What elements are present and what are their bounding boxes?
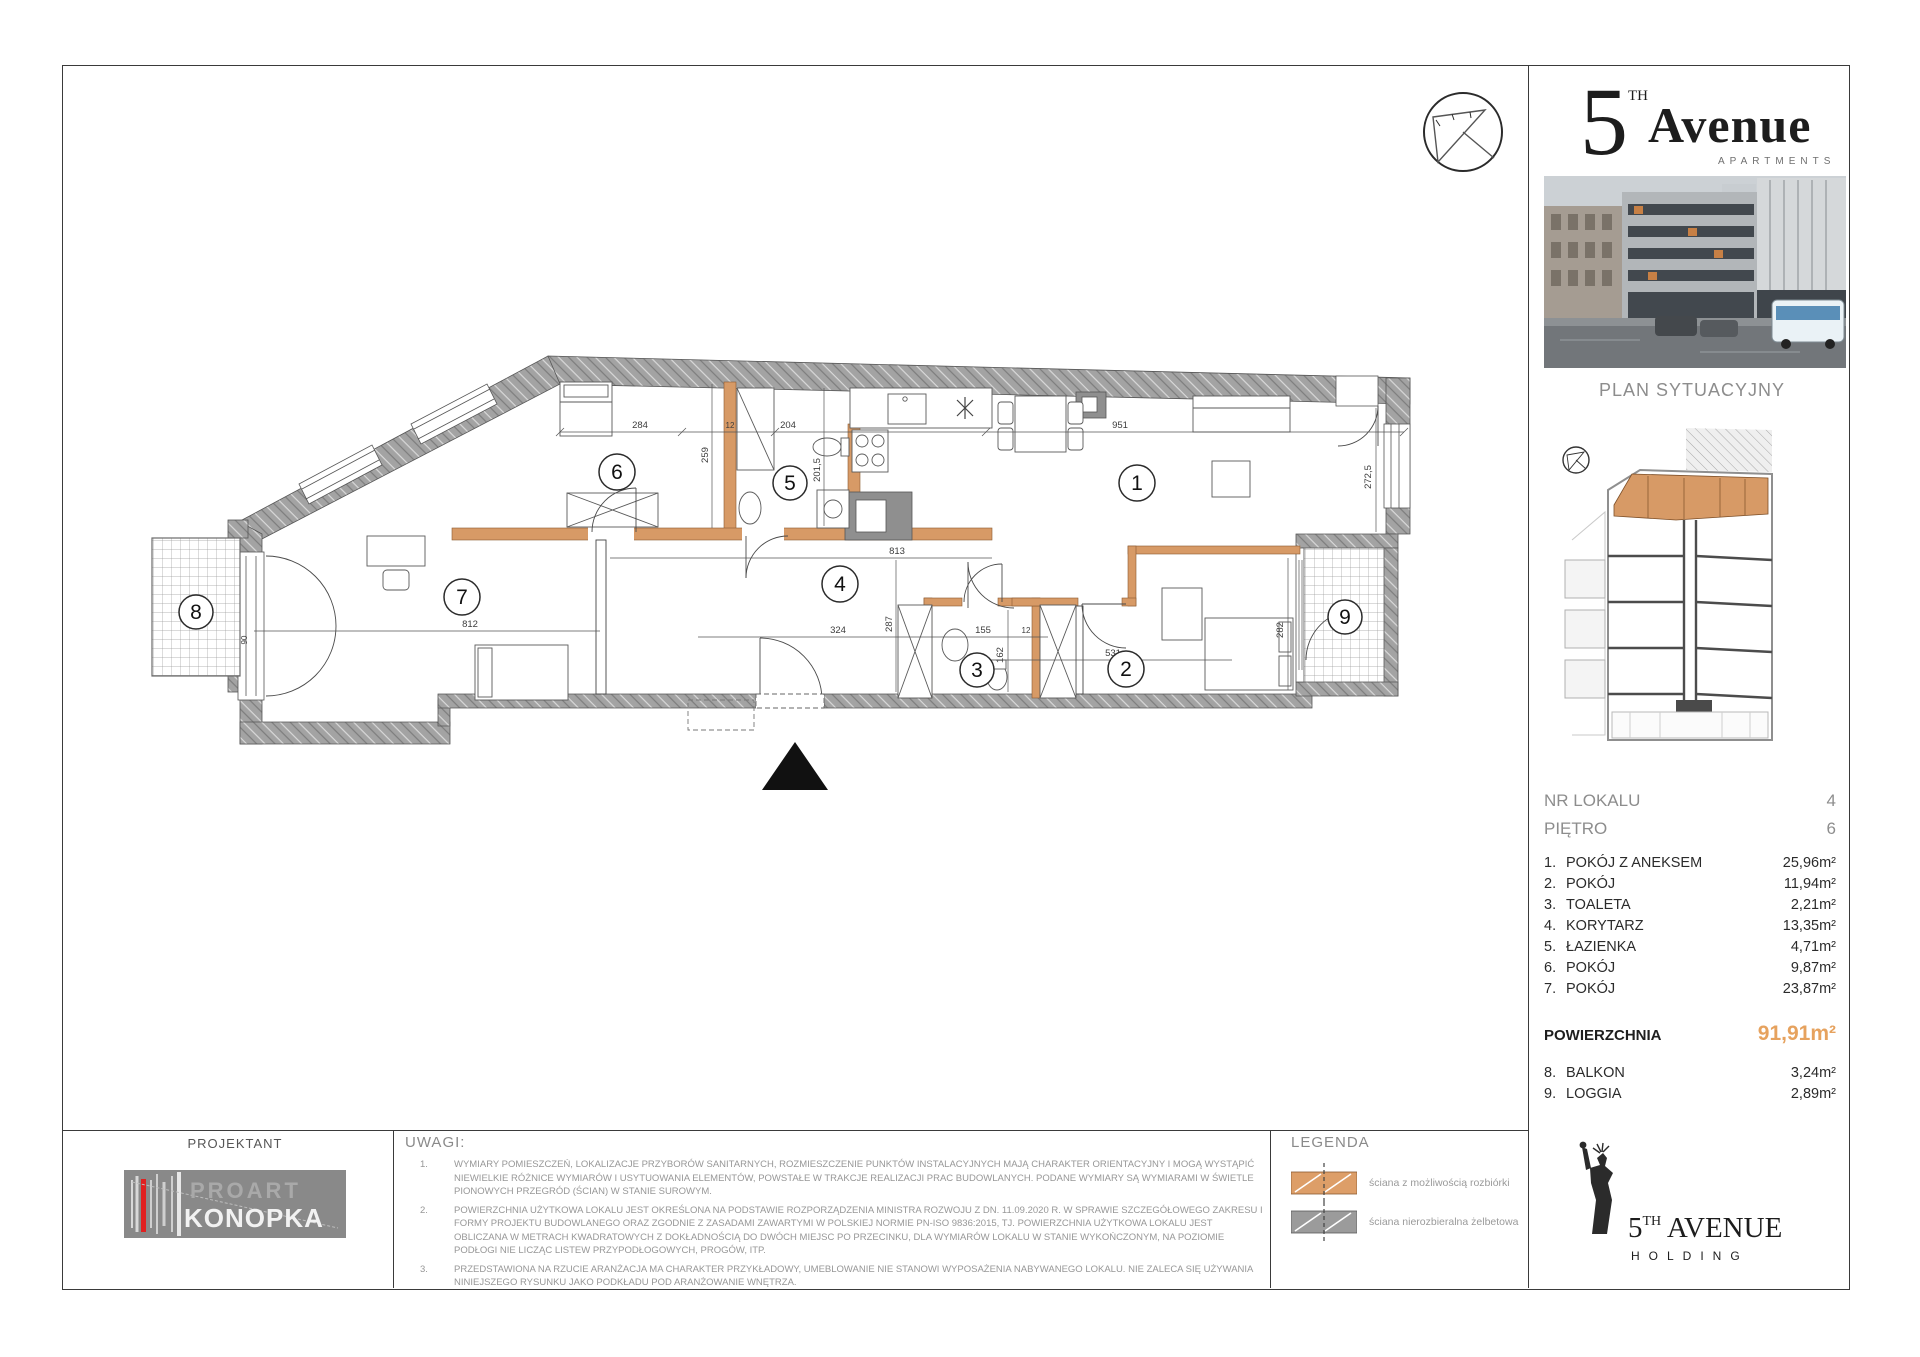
site-plan-title: PLAN SYTUACYJNY	[1542, 380, 1842, 401]
unit-number-value: 4	[1827, 791, 1836, 811]
legend-item-demountable: ściana z możliwością rozbiórki	[1291, 1163, 1510, 1203]
svg-text:3: 3	[971, 659, 983, 682]
room-number-3: 3	[960, 653, 994, 687]
footer-divider	[62, 1130, 1528, 1131]
bus	[1772, 300, 1844, 349]
brand-logo: 5THAvenue APARTMENTS	[1580, 82, 1842, 178]
room-area: 25,96m²	[1783, 855, 1836, 871]
room-name: POKÓJ	[1566, 876, 1784, 892]
room-name: BALKON	[1566, 1065, 1791, 1081]
logo-line2: KONOPKA	[184, 1203, 324, 1233]
svg-text:282: 282	[1275, 622, 1286, 638]
statue-of-liberty-icon	[1570, 1138, 1630, 1238]
room-no: 5.	[1544, 939, 1566, 955]
floor-plan-drawing: 284 12 204 951 259 201,5 813 287 324 12 …	[62, 65, 1528, 1130]
footer-divider-2	[1270, 1130, 1271, 1288]
holding-name: AVENUE	[1661, 1212, 1782, 1244]
room-number-7: 7	[444, 579, 480, 615]
room-number-6: 6	[599, 454, 635, 490]
note-no: 2.	[420, 1204, 454, 1258]
svg-text:12: 12	[1022, 626, 1031, 635]
room-number-4: 4	[822, 566, 858, 602]
svg-text:4: 4	[834, 573, 846, 596]
svg-text:813: 813	[889, 546, 905, 557]
svg-text:284: 284	[632, 420, 648, 431]
svg-text:5: 5	[784, 472, 796, 495]
svg-text:12: 12	[726, 421, 735, 430]
room-no: 3.	[1544, 897, 1566, 913]
room-no: 8.	[1544, 1065, 1566, 1081]
svg-text:155: 155	[975, 625, 991, 636]
room-number-8: 8	[179, 595, 213, 629]
room-row-1: 1. POKÓJ Z ANEKSEM 25,96m²	[1542, 855, 1842, 871]
legend-swatch-gray	[1291, 1202, 1357, 1242]
svg-text:90: 90	[240, 635, 249, 644]
legend-label: ściana z możliwością rozbiórki	[1369, 1177, 1510, 1189]
room-no: 4.	[1544, 918, 1566, 934]
svg-text:7: 7	[456, 586, 468, 609]
brand-word: Avenue	[1648, 97, 1811, 153]
building-photo	[1544, 176, 1846, 368]
north-orientation-icon	[1424, 93, 1502, 171]
room-name: POKÓJ Z ANEKSEM	[1566, 855, 1783, 871]
room-no: 1.	[1544, 855, 1566, 871]
room-area: 9,87m²	[1791, 960, 1836, 976]
room-area: 23,87m²	[1783, 981, 1836, 997]
svg-text:324: 324	[830, 625, 846, 636]
legend-item-concrete: ściana nierozbieralna żelbetowa	[1291, 1202, 1518, 1242]
svg-text:1: 1	[1131, 472, 1143, 495]
svg-text:204: 204	[780, 420, 796, 431]
notes-list: 1. WYMIARY POMIESZCZEŃ, LOKALIZACJE PRZY…	[420, 1158, 1265, 1295]
note-no: 3.	[420, 1263, 454, 1290]
legend-swatch-orange	[1291, 1163, 1357, 1203]
room-area: 2,21m²	[1791, 897, 1836, 913]
note-text: POWIERZCHNIA UŻYTKOWA LOKALU JEST OKREŚL…	[454, 1204, 1265, 1258]
svg-text:201,5: 201,5	[812, 458, 823, 482]
svg-text:162: 162	[995, 647, 1006, 663]
note-text: WYMIARY POMIESZCZEŃ, LOKALIZACJE PRZYBOR…	[454, 1158, 1265, 1199]
room-number-9: 9	[1328, 600, 1362, 634]
holding-logo: 5TH AVENUE HOLDING	[1628, 1212, 1828, 1263]
entrance-marker	[762, 742, 828, 790]
total-area-row: POWIERZCHNIA 91,91m²	[1542, 1022, 1842, 1046]
room-name: POKÓJ	[1566, 981, 1783, 997]
brand-subtitle: APARTMENTS	[1718, 156, 1835, 167]
entrance-threshold	[756, 694, 824, 708]
svg-text:6: 6	[611, 461, 623, 484]
room-no: 6.	[1544, 960, 1566, 976]
room-area: 3,24m²	[1791, 1065, 1836, 1081]
room-row-2: 2. POKÓJ 11,94m²	[1542, 876, 1842, 892]
svg-text:272,5: 272,5	[1363, 465, 1374, 489]
svg-text:2: 2	[1120, 658, 1132, 681]
note-text: PRZEDSTAWIONA NA RZUCIE ARANŻACJA MA CHA…	[454, 1263, 1265, 1290]
room-number-1: 1	[1119, 465, 1155, 501]
room-area: 13,35m²	[1783, 918, 1836, 934]
logo-line1: PROART	[190, 1178, 301, 1203]
bathroom-door-gap	[742, 526, 784, 542]
brand-sup: TH	[1628, 88, 1648, 104]
room-no: 2.	[1544, 876, 1566, 892]
unit-number-row: NR LOKALU 4	[1542, 791, 1842, 811]
balcony-row: 8. BALKON 3,24m²	[1542, 1065, 1842, 1081]
room-row-7: 7. POKÓJ 23,87m²	[1542, 981, 1842, 997]
note-2: 2. POWIERZCHNIA UŻYTKOWA LOKALU JEST OKR…	[420, 1204, 1265, 1258]
room-no: 7.	[1544, 981, 1566, 997]
furniture	[367, 382, 1293, 700]
note-1: 1. WYMIARY POMIESZCZEŃ, LOKALIZACJE PRZY…	[420, 1158, 1265, 1199]
room-area: 2,89m²	[1791, 1086, 1836, 1102]
svg-text:9: 9	[1339, 606, 1351, 629]
room-name: TOALETA	[1566, 897, 1791, 913]
interior-walls	[596, 540, 1083, 694]
note-3: 3. PRZEDSTAWIONA NA RZUCIE ARANŻACJA MA …	[420, 1263, 1265, 1290]
svg-text:8: 8	[190, 601, 202, 624]
svg-text:287: 287	[884, 616, 895, 632]
room-name: POKÓJ	[1566, 960, 1791, 976]
room-name: KORYTARZ	[1566, 918, 1783, 934]
room6-door-gap	[588, 526, 634, 542]
unit-number-label: NR LOKALU	[1544, 791, 1640, 811]
legend-label: ściana nierozbieralna żelbetowa	[1369, 1216, 1518, 1228]
svg-text:951: 951	[1112, 420, 1128, 431]
holding-sup: TH	[1643, 1214, 1662, 1229]
room-number-2: 2	[1108, 651, 1144, 687]
room-area: 11,94m²	[1784, 876, 1836, 892]
floor-row: PIĘTRO 6	[1542, 819, 1842, 839]
room-name: LOGGIA	[1566, 1086, 1791, 1102]
total-area-label: POWIERZCHNIA	[1544, 1027, 1662, 1044]
holding-line2: HOLDING	[1631, 1249, 1828, 1263]
room-row-6: 6. POKÓJ 9,87m²	[1542, 960, 1842, 976]
footer-divider-1	[393, 1130, 394, 1288]
room-number-5: 5	[773, 466, 807, 500]
svg-text:812: 812	[462, 619, 478, 630]
room-area: 4,71m²	[1791, 939, 1836, 955]
mini-north-icon	[1563, 447, 1589, 473]
proart-konopka-logo: PROART KONOPKA	[124, 1170, 346, 1238]
loggia-row: 9. LOGGIA 2,89m²	[1542, 1086, 1842, 1102]
total-area-value: 91,91m²	[1758, 1022, 1836, 1046]
holding-digit: 5	[1628, 1212, 1643, 1244]
room-row-3: 3. TOALETA 2,21m²	[1542, 897, 1842, 913]
room-no: 9.	[1544, 1086, 1566, 1102]
room-name: ŁAZIENKA	[1566, 939, 1791, 955]
room-row-5: 5. ŁAZIENKA 4,71m²	[1542, 939, 1842, 955]
floor-plan-sheet: 284 12 204 951 259 201,5 813 287 324 12 …	[0, 0, 1920, 1357]
note-no: 1.	[420, 1158, 454, 1199]
svg-text:259: 259	[700, 447, 711, 463]
brand-digit: 5	[1580, 68, 1628, 175]
sidebar-divider	[1528, 65, 1529, 1288]
room-row-4: 4. KORYTARZ 13,35m²	[1542, 918, 1842, 934]
site-plan-map	[1542, 405, 1848, 770]
floor-value: 6	[1827, 819, 1836, 839]
floor-label: PIĘTRO	[1544, 819, 1607, 839]
